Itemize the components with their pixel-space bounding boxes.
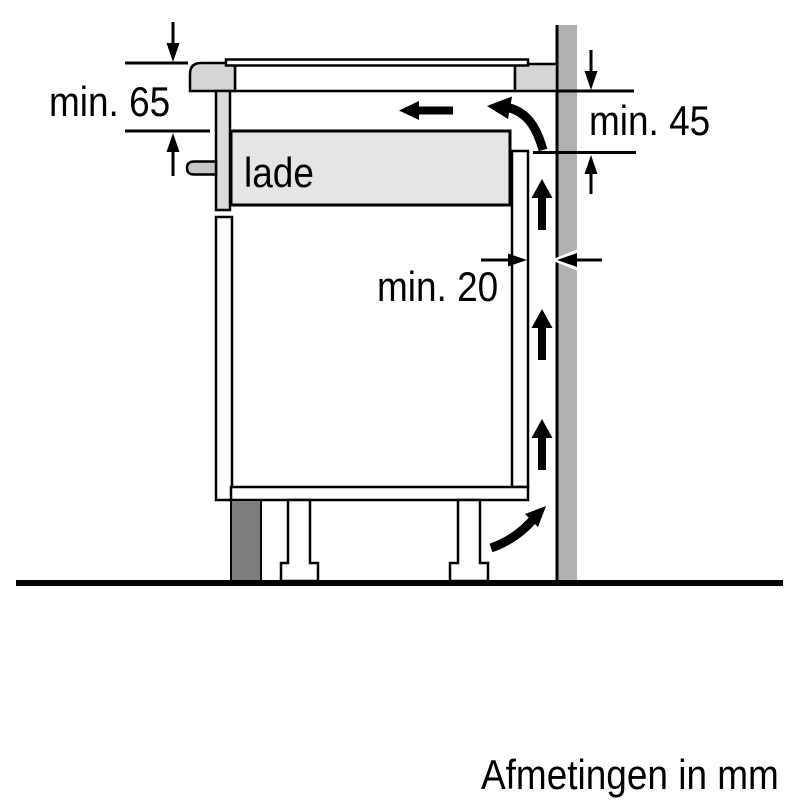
cabinet-back-panel bbox=[512, 151, 528, 487]
dimension-label-min65: min. 65 bbox=[49, 81, 170, 123]
footer-units-note: Afmetingen in mm bbox=[481, 754, 779, 796]
drawer-label: lade bbox=[244, 152, 314, 194]
dim-arrow-down-45 bbox=[585, 50, 598, 90]
installation-diagram: min. 65 min. 45 min. 20 lade Afmetingen … bbox=[0, 0, 800, 800]
airflow-up-arrow-3 bbox=[532, 419, 553, 470]
dim-arrow-down-65 bbox=[167, 22, 180, 62]
cabinet-front-panel bbox=[216, 217, 232, 500]
mounting-knob bbox=[187, 162, 216, 175]
cabinet-foot-front bbox=[281, 500, 318, 581]
hob-trim-right bbox=[515, 64, 557, 91]
wall bbox=[557, 25, 577, 581]
airflow-up-arrow-2 bbox=[532, 309, 553, 360]
dimension-label-min20: min. 20 bbox=[377, 266, 498, 308]
airflow-up-arrow-1 bbox=[532, 179, 553, 230]
dimension-label-min45: min. 45 bbox=[589, 100, 710, 142]
airflow-curved-bottom-arrow bbox=[491, 506, 546, 548]
cabinet-foot-rear bbox=[450, 500, 488, 581]
hob-housing-front bbox=[216, 91, 230, 210]
plinth bbox=[231, 500, 261, 581]
airflow-left-arrow bbox=[399, 101, 453, 120]
hob-trim-front bbox=[190, 63, 235, 91]
hob-glass-top bbox=[226, 60, 528, 66]
dim-arrow-up-65 bbox=[167, 133, 180, 176]
cabinet-bottom bbox=[231, 487, 528, 500]
dim-arrow-up-45 bbox=[585, 155, 598, 194]
worktop-section bbox=[235, 64, 515, 91]
